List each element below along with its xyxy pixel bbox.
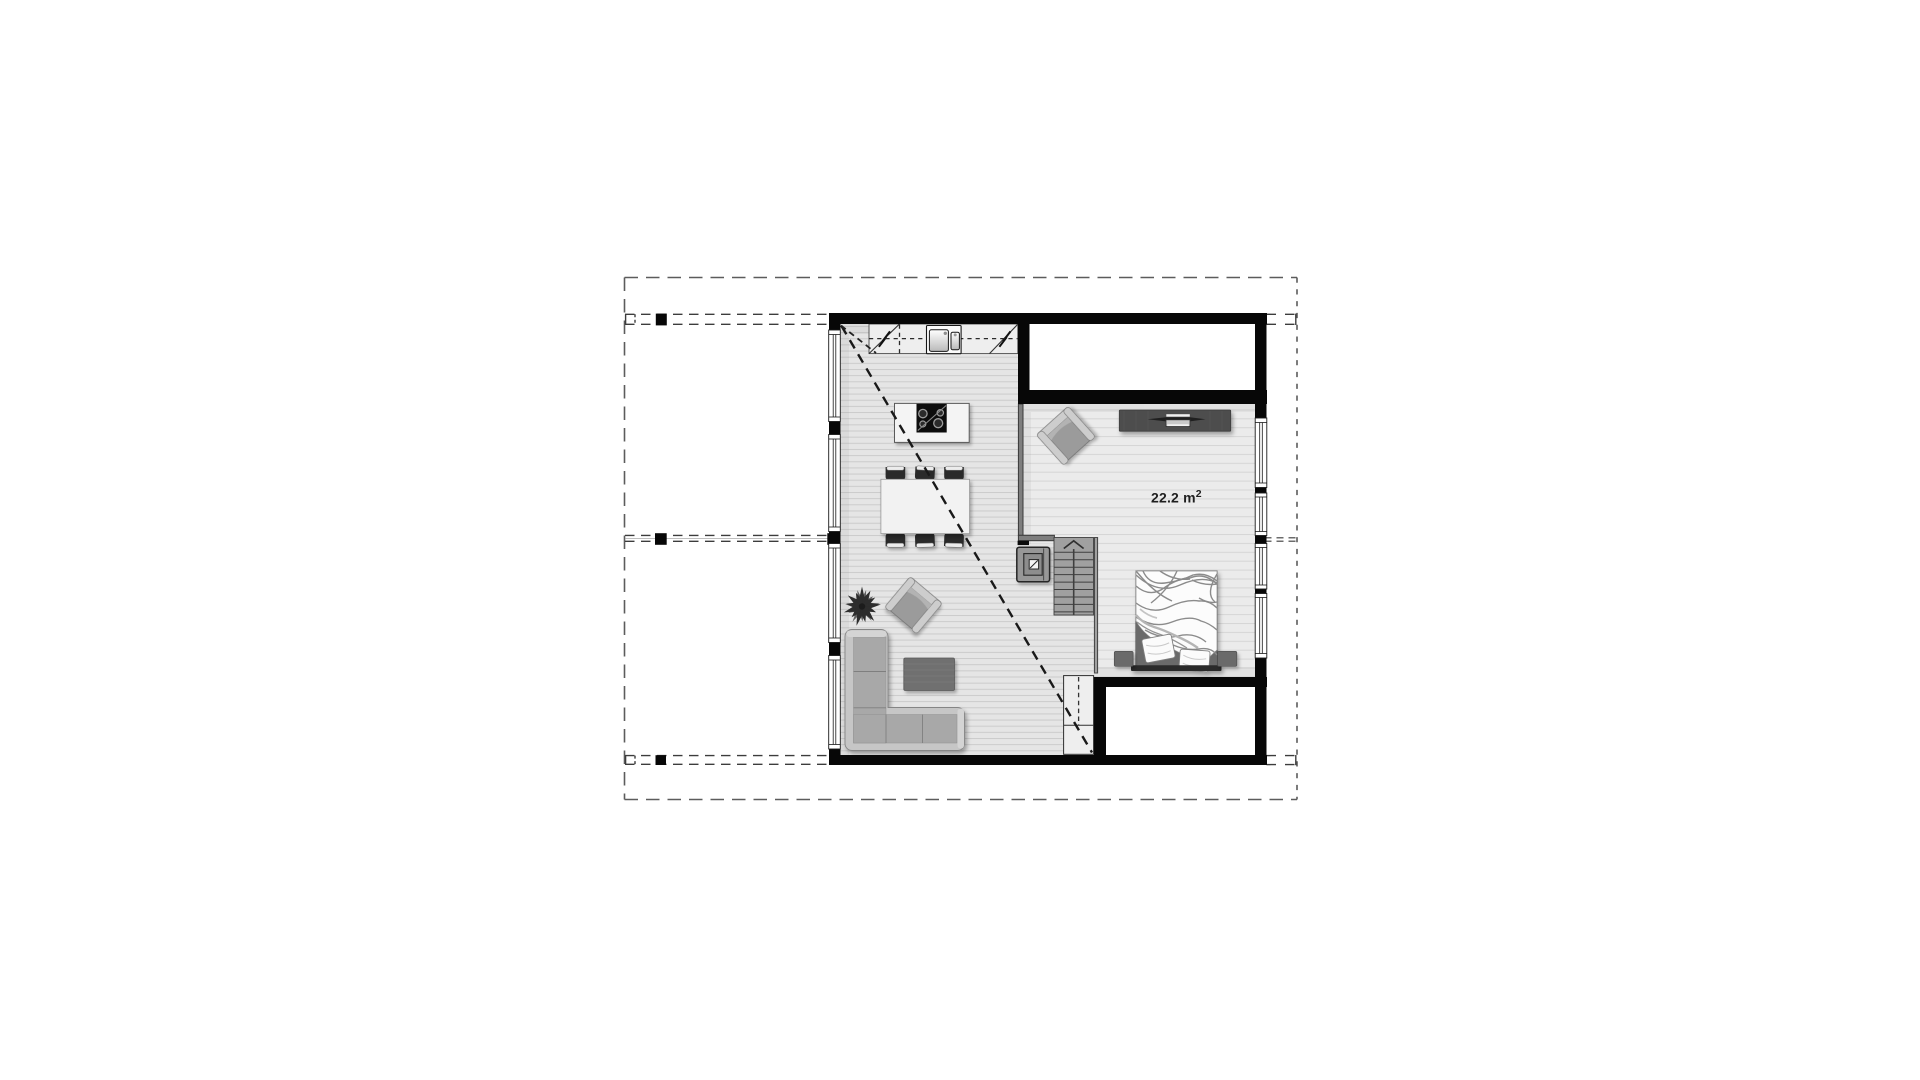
svg-text:22.2 m2: 22.2 m2 xyxy=(1151,488,1202,506)
